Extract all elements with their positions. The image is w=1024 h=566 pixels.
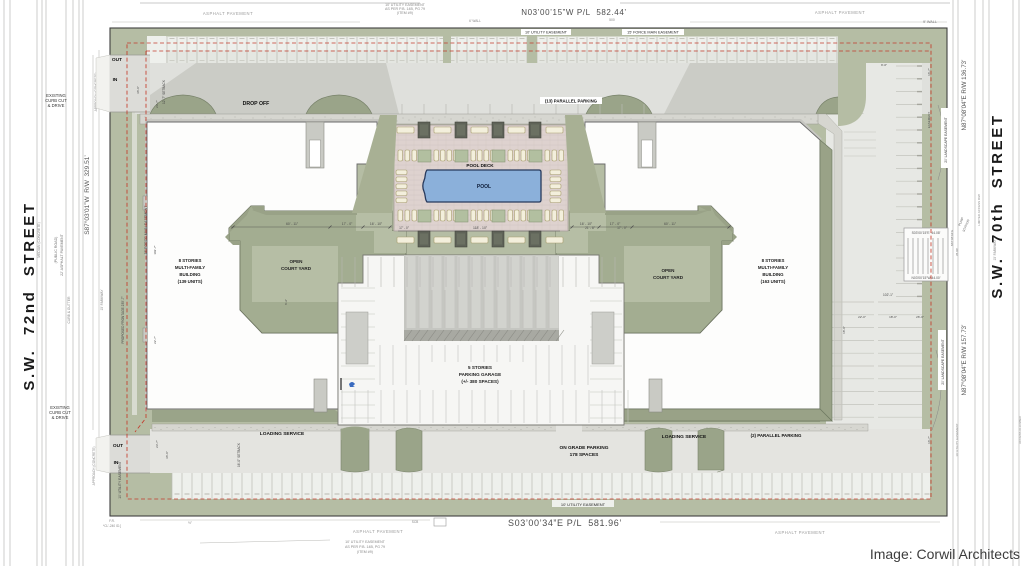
svg-text:102’-1”: 102’-1” <box>883 293 893 297</box>
svg-text:23’-7”: 23’-7” <box>155 100 159 108</box>
svg-text:SCB: SCB <box>412 520 419 524</box>
svg-text:*CL’-240 ID.]: *CL’-240 ID.] <box>103 524 121 528</box>
svg-text:PARKING GARAGE: PARKING GARAGE <box>459 372 501 377</box>
svg-text:10’ UTILITY EASEMENT: 10’ UTILITY EASEMENT <box>525 31 568 35</box>
svg-text:36’-0”: 36’-0” <box>165 451 169 459</box>
svg-text:F.R.: F.R. <box>109 519 115 523</box>
svg-text:ACCESS ALLOWED: ACCESS ALLOWED <box>1018 415 1022 444</box>
svg-text:(2) PARALLEL PARKING: (2) PARALLEL PARKING <box>751 433 802 438</box>
svg-text:22’-7”: 22’-7” <box>153 336 157 344</box>
svg-text:& DRIVE: & DRIVE <box>48 103 65 108</box>
svg-text:MULTI-FAMILY: MULTI-FAMILY <box>175 265 205 270</box>
svg-text:& DRIVE: & DRIVE <box>52 415 69 420</box>
svg-text:Image: Corwil Architects: Image: Corwil Architects <box>870 546 1020 562</box>
svg-text:CURB & GUTTER: CURB & GUTTER <box>67 296 71 324</box>
svg-text:AS PER P.B. 14B, PG 79: AS PER P.B. 14B, PG 79 <box>345 545 385 549</box>
svg-text:12’-7” SETBACK: 12’-7” SETBACK <box>162 79 166 104</box>
svg-text:18’-0”: 18’-0” <box>889 315 897 319</box>
svg-text:OUT: OUT <box>112 57 122 63</box>
svg-text:(163 UNITS): (163 UNITS) <box>761 279 786 284</box>
svg-text:15’ PARKWAY: 15’ PARKWAY <box>100 289 104 311</box>
svg-text:ASPHALT PAVEMENT: ASPHALT PAVEMENT <box>815 10 865 15</box>
svg-text:ON GRADE PARKING: ON GRADE PARKING <box>560 445 609 451</box>
svg-text:36’-0”: 36’-0” <box>136 86 140 94</box>
svg-text:LOADING SERVICE: LOADING SERVICE <box>662 434 707 440</box>
svg-text:20’ LANDSCAPE EASEMENT: 20’ LANDSCAPE EASEMENT <box>941 339 945 384</box>
svg-text:N87°08’04”E R/W 157.73’: N87°08’04”E R/W 157.73’ <box>961 325 968 396</box>
svg-text:20’ LANDSCAPE EASEMENT: 20’ LANDSCAPE EASEMENT <box>944 117 948 162</box>
svg-text:N87°08’04”E R/W 136.73’: N87°08’04”E R/W 136.73’ <box>961 60 968 131</box>
svg-text:(ITEM #9): (ITEM #9) <box>397 11 413 15</box>
svg-text:500: 500 <box>609 18 615 22</box>
svg-text:10’ UTILITY EASEMENT: 10’ UTILITY EASEMENT <box>118 461 122 499</box>
svg-text:17’ - 0”: 17’ - 0” <box>342 222 352 226</box>
svg-text:(PUBLIC ROAD): (PUBLIC ROAD) <box>54 237 58 264</box>
svg-text:(13) PARALLEL PARKING: (13) PARALLEL PARKING <box>545 99 598 104</box>
svg-text:ASPHALT PAVEMENT: ASPHALT PAVEMENT <box>775 530 825 535</box>
svg-text:10’ UTILITY EASEMENT: 10’ UTILITY EASEMENT <box>561 502 606 507</box>
svg-text:IN: IN <box>113 77 118 83</box>
svg-text:15’ PARKWAY: 15’ PARKWAY <box>993 239 997 261</box>
svg-text:BUILDING: BUILDING <box>179 272 201 277</box>
svg-text:17’ - 0”: 17’ - 0” <box>399 226 409 230</box>
svg-text:½”: ½” <box>188 521 192 525</box>
svg-text:102’-7”: 102’-7” <box>153 245 157 254</box>
svg-text:(+/- 380 SPACES): (+/- 380 SPACES) <box>461 379 499 384</box>
svg-text:COURT YARD: COURT YARD <box>281 266 312 271</box>
svg-text:(139 UNITS): (139 UNITS) <box>178 279 203 284</box>
svg-text:22’-0”: 22’-0” <box>858 315 866 319</box>
svg-text:15’ FORCE MAIN EASEMENT: 15’ FORCE MAIN EASEMENT <box>627 31 679 35</box>
svg-text:OUT: OUT <box>113 443 123 449</box>
svg-text:S03’00’34”E P/L 581.96’: S03’00’34”E P/L 581.96’ <box>508 518 622 528</box>
svg-text:OPEN: OPEN <box>661 268 675 273</box>
svg-text:178 SPACES: 178 SPACES <box>570 452 600 458</box>
svg-text:5 STORIES: 5 STORIES <box>468 365 492 370</box>
svg-text:MEDIAN (CONCRETE): MEDIAN (CONCRETE) <box>37 222 41 257</box>
svg-text:18’-0”: 18’-0” <box>842 326 846 334</box>
svg-text:MULTI-FAMILY: MULTI-FAMILY <box>758 265 788 270</box>
svg-text:6’ WALL: 6’ WALL <box>469 19 481 23</box>
svg-text:23’-7”: 23’-7” <box>155 440 159 448</box>
svg-text:ASPHALT PAVEMENT: ASPHALT PAVEMENT <box>353 529 403 534</box>
svg-text:8 STORIES: 8 STORIES <box>762 258 785 263</box>
svg-text:S03’00’15”E 44.08’: S03’00’15”E 44.08’ <box>912 231 941 235</box>
svg-text:PROPOSED FRONTAGE 235’-7”: PROPOSED FRONTAGE 235’-7” <box>121 296 125 343</box>
svg-text:9’-0”: 9’-0” <box>881 63 887 67</box>
svg-text:LOADING SERVICE: LOADING SERVICE <box>260 431 305 437</box>
svg-text:OPEN: OPEN <box>289 259 303 264</box>
svg-text:COURT YARD: COURT YARD <box>653 275 684 280</box>
svg-text:POOL DECK: POOL DECK <box>466 163 494 168</box>
svg-text:9’ WALL: 9’ WALL <box>923 20 937 24</box>
svg-text:16’-7”: 16’-7” <box>927 436 931 444</box>
svg-text:26’-0”: 26’-0” <box>916 315 924 319</box>
svg-text:EASEMENT: EASEMENT <box>927 112 931 129</box>
svg-text:DROP OFF: DROP OFF <box>243 101 270 107</box>
svg-text:LIMITED ACCESS R/W: LIMITED ACCESS R/W <box>977 194 981 226</box>
svg-text:35.00’: 35.00’ <box>955 248 959 257</box>
svg-text:N03’00’15”W 44.00’: N03’00’15”W 44.00’ <box>912 276 941 280</box>
svg-text:16’-0” SETBACK: 16’-0” SETBACK <box>237 442 241 467</box>
svg-text:16’-7”: 16’-7” <box>927 68 931 76</box>
svg-text:17’ - 0”: 17’ - 0” <box>617 226 627 230</box>
svg-text:S87°03’01”W R/W 329.51’: S87°03’01”W R/W 329.51’ <box>83 155 91 235</box>
svg-text:S.W. 72nd STREET: S.W. 72nd STREET <box>21 201 38 390</box>
svg-text:APPROACH (CONCRETE): APPROACH (CONCRETE) <box>92 447 96 486</box>
svg-text:60’ - 11”: 60’ - 11” <box>286 222 298 226</box>
svg-text:21’ - 8”: 21’ - 8” <box>585 226 595 230</box>
svg-text:N03’00’15”W P/L 582.44’: N03’00’15”W P/L 582.44’ <box>521 8 627 17</box>
svg-text:10’ UTILITY EASEMENT: 10’ UTILITY EASEMENT <box>955 423 959 456</box>
svg-text:22’ ASPHALT PAVEMENT: 22’ ASPHALT PAVEMENT <box>60 233 64 276</box>
svg-text:POOL: POOL <box>477 184 491 190</box>
svg-text:(ITEM #9): (ITEM #9) <box>357 550 373 554</box>
svg-text:8 STORIES: 8 STORIES <box>179 258 202 263</box>
svg-text:118’ - 10”: 118’ - 10” <box>473 226 487 230</box>
svg-text:10’ UTILITY EASEMENT: 10’ UTILITY EASEMENT <box>345 540 386 544</box>
svg-text:S.W. 70th STREET: S.W. 70th STREET <box>989 113 1006 298</box>
svg-text:60’ - 11”: 60’ - 11” <box>664 222 676 226</box>
svg-text:6’-2”: 6’-2” <box>284 299 288 305</box>
svg-text:ASPHALT PAVEMENT: ASPHALT PAVEMENT <box>203 11 253 16</box>
svg-text:N87’08’04”E: N87’08’04”E <box>950 230 954 247</box>
svg-text:16’ - 10”: 16’ - 10” <box>370 222 382 226</box>
svg-text:BUILDING: BUILDING <box>762 272 784 277</box>
